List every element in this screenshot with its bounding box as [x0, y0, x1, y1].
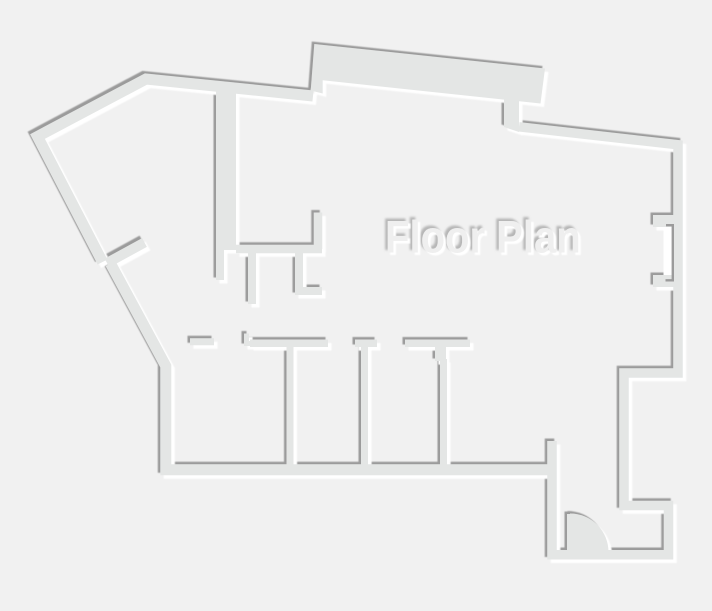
- svg-text:Floor Plan: Floor Plan: [385, 212, 581, 263]
